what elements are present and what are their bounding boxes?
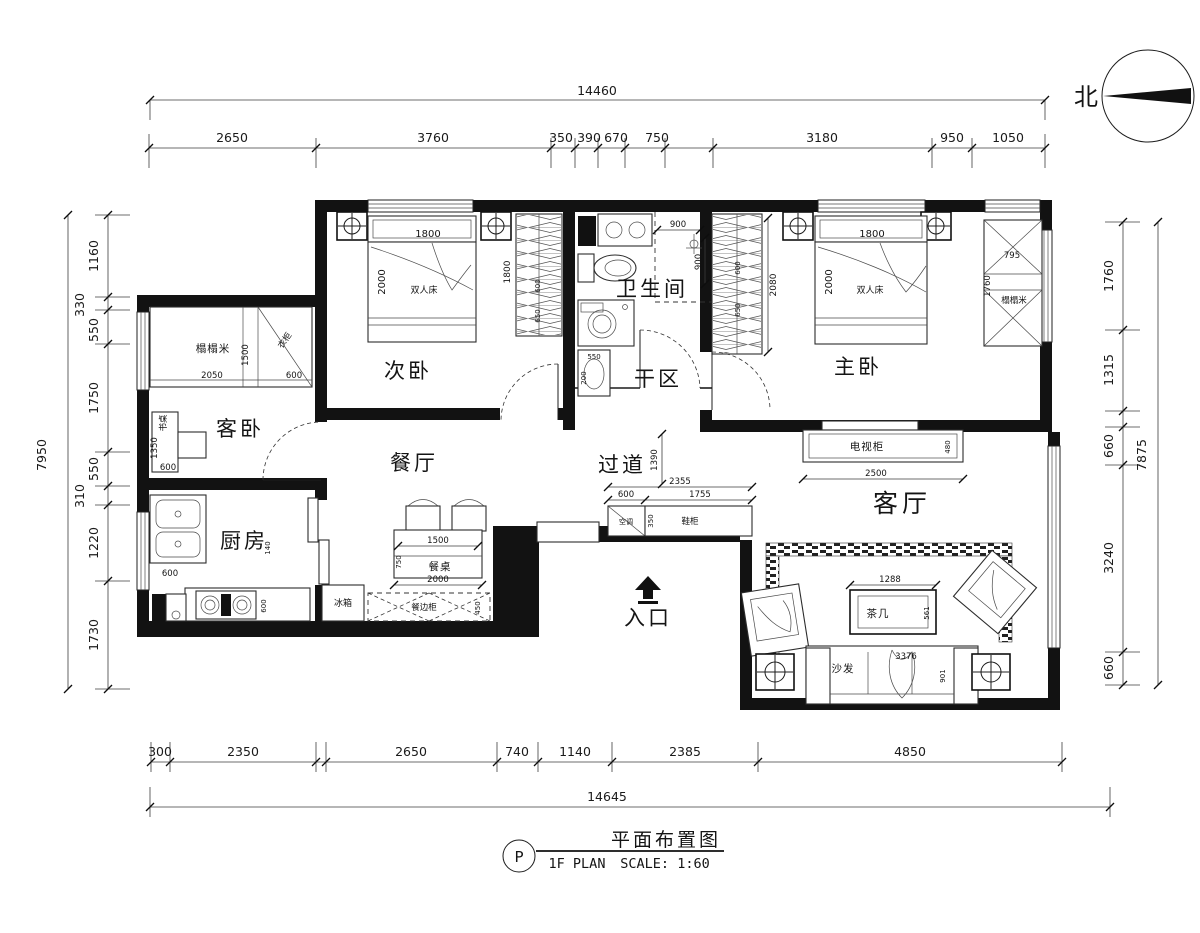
shoe-cabinet: 350 鞋柜 bbox=[645, 506, 752, 536]
dim-left-total: 7950 bbox=[34, 439, 49, 471]
tatami-dim: 2050 bbox=[201, 371, 223, 381]
room-label-kitchen: 厨房 bbox=[220, 529, 268, 553]
dry-area: 550 200 干区 bbox=[578, 350, 682, 396]
sofa-label: 沙发 bbox=[832, 662, 855, 675]
window-second-bedroom-top bbox=[368, 200, 473, 212]
kitchen: 厨房 140 600 600 bbox=[150, 495, 329, 621]
dim-top-total: 14460 bbox=[577, 83, 617, 98]
double-bed-label: 双人床 bbox=[410, 284, 437, 296]
desk-label: 书桌 bbox=[158, 414, 169, 432]
basin-dim: 550 bbox=[587, 353, 600, 361]
tea-table-dim: 561 bbox=[923, 606, 931, 619]
dim-right: 1315 bbox=[1101, 354, 1116, 386]
dim-left: 330 bbox=[72, 293, 87, 317]
tatami-dim: 1760 bbox=[983, 275, 993, 297]
tatami-nook: 795 1760 榻榻米 bbox=[983, 220, 1042, 346]
master-bedroom: 1800 2000 双人床 2080 600 650 795 1760 榻榻米 … bbox=[712, 214, 1042, 430]
tatami-dim: 1500 bbox=[241, 344, 251, 366]
room-label-second-bedroom: 次卧 bbox=[384, 359, 432, 383]
guest-bedroom: 榻榻米 2050 1500 600 衣柜 书桌 1350 600 客卧 bbox=[150, 307, 321, 480]
wardrobe: 2080 600 650 bbox=[712, 214, 779, 356]
sofa-dim: 3376 bbox=[895, 652, 917, 662]
dim-top: 350 bbox=[549, 130, 573, 145]
kitchen-dim: 600 bbox=[162, 569, 178, 579]
table-dim: 750 bbox=[395, 555, 403, 568]
dim-top: 950 bbox=[940, 130, 964, 145]
table-dim: 2000 bbox=[427, 575, 449, 585]
dim-left: 1220 bbox=[86, 527, 101, 559]
tea-table: 茶几 1288 561 bbox=[846, 575, 940, 634]
wardrobe-dim: 2080 bbox=[769, 273, 779, 296]
sideboard: 餐边柜 450 bbox=[368, 593, 490, 621]
window-kitchen-left bbox=[137, 512, 149, 590]
dim-left: 310 bbox=[72, 484, 87, 508]
double-bed-label: 双人床 bbox=[856, 284, 883, 296]
entry-door bbox=[537, 522, 599, 542]
dim-top: 3760 bbox=[417, 130, 449, 145]
dim-bottom: 740 bbox=[505, 744, 529, 759]
room-label-corridor: 过道 bbox=[598, 453, 646, 477]
dim-right: 1760 bbox=[1101, 260, 1116, 292]
compass-needle-icon bbox=[1103, 88, 1191, 104]
room-label-living: 客厅 bbox=[873, 489, 931, 518]
drawing-title: 平面布置图 bbox=[611, 829, 721, 851]
dining-table: 1500 750 餐桌 2000 bbox=[390, 530, 486, 589]
desk-dim: 600 bbox=[160, 463, 176, 473]
wardrobe-dim: 650 bbox=[734, 303, 742, 316]
room-label-bathroom: 卫生间 bbox=[616, 277, 688, 301]
column-icon bbox=[337, 212, 367, 240]
window-guest-left bbox=[137, 312, 149, 390]
table-label: 餐桌 bbox=[429, 560, 452, 573]
bed-depth-dim: 2000 bbox=[824, 269, 835, 294]
sofa-dim: 901 bbox=[939, 669, 947, 682]
wardrobe-dim: 650 bbox=[534, 309, 542, 322]
corner-fixture bbox=[166, 594, 186, 621]
room-label-guest-bedroom: 客卧 bbox=[216, 417, 264, 441]
dim-top: 1050 bbox=[992, 130, 1024, 145]
wardrobe-dim: 1800 bbox=[503, 260, 513, 283]
door-second-bedroom bbox=[501, 364, 558, 420]
title-ref-letter: P bbox=[514, 848, 523, 866]
sofa: 沙发 3376 901 bbox=[806, 646, 978, 704]
window-living-right bbox=[1048, 446, 1060, 648]
window-tatami-top bbox=[985, 200, 1040, 212]
bed-width-dim: 1800 bbox=[859, 229, 884, 240]
dim-right: 660 bbox=[1101, 656, 1116, 680]
corridor-dim: 600 bbox=[618, 490, 634, 500]
drawing-scale: SCALE: 1:60 bbox=[620, 856, 709, 872]
plan-code: 1F PLAN bbox=[549, 856, 606, 872]
room-label-dry-area: 干区 bbox=[634, 367, 682, 391]
armchair-left bbox=[741, 584, 808, 656]
column-icon bbox=[972, 654, 1010, 690]
dim-left: 1730 bbox=[86, 619, 101, 651]
dim-bottom: 2650 bbox=[395, 744, 427, 759]
kitchen-dim: 600 bbox=[260, 599, 268, 612]
tv-dim: 480 bbox=[944, 440, 952, 453]
wardrobe-dim: 600 bbox=[534, 279, 542, 292]
kitchen-sink bbox=[150, 495, 206, 563]
dim-left: 1160 bbox=[86, 240, 101, 272]
bed-depth-dim: 2000 bbox=[377, 269, 388, 294]
kitchen-dim: 140 bbox=[264, 541, 272, 554]
tv-wall-niche bbox=[822, 421, 918, 430]
wardrobe-dim: 600 bbox=[734, 261, 742, 274]
armchair-right bbox=[954, 550, 1037, 633]
column-icon bbox=[783, 212, 813, 240]
title-block: P 平面布置图 1F PLAN SCALE: 1:60 bbox=[503, 829, 724, 872]
tatami-label: 榻榻米 bbox=[196, 342, 231, 355]
door-master-bedroom bbox=[712, 352, 770, 410]
dim-left: 550 bbox=[86, 318, 101, 342]
fridge-label: 冰箱 bbox=[334, 597, 352, 609]
cabinet-label: 鞋柜 bbox=[681, 516, 699, 527]
north-arrow: 北 bbox=[1074, 50, 1194, 142]
tv-cabinet: 电视柜 480 2500 bbox=[799, 430, 967, 483]
desk-dim: 1350 bbox=[150, 437, 160, 459]
dining-chair bbox=[452, 500, 486, 532]
dim-left: 1750 bbox=[86, 382, 101, 414]
wardrobe: 1800 600 650 bbox=[503, 214, 562, 336]
living-room: 电视柜 480 2500 客厅 茶几 1288 561 bbox=[741, 430, 1036, 704]
shower-dim: 900 bbox=[694, 254, 704, 270]
dim-chain-right: 1760 1315 660 3240 660 7875 bbox=[1101, 218, 1162, 689]
dim-top: 2650 bbox=[216, 130, 248, 145]
dining-room: 餐厅 1500 750 餐桌 2000 餐边柜 450 冰 bbox=[322, 451, 490, 621]
fridge: 冰箱 bbox=[322, 585, 364, 621]
door-guest-bedroom bbox=[263, 422, 321, 480]
dim-bottom: 300 bbox=[148, 744, 172, 759]
tv-cabinet-label: 电视柜 bbox=[850, 440, 885, 453]
vanity bbox=[578, 214, 652, 246]
dim-chain-left: 7950 1160 330 550 1750 550 310 1220 1730 bbox=[34, 211, 130, 693]
sideboard-dim: 450 bbox=[474, 601, 482, 614]
tea-table-label: 茶几 bbox=[867, 607, 890, 620]
north-label: 北 bbox=[1074, 83, 1098, 111]
tatami-dim: 600 bbox=[286, 371, 302, 381]
dim-chain-bottom: 300 2350 2650 740 1140 2385 4850 14645 bbox=[146, 742, 1114, 817]
dining-chair bbox=[406, 500, 440, 532]
corridor-dim: 2355 bbox=[669, 477, 691, 487]
table-dim: 1500 bbox=[427, 536, 449, 546]
dim-top: 670 bbox=[604, 130, 628, 145]
dim-bottom-total: 14645 bbox=[587, 789, 627, 804]
dim-top: 3180 bbox=[806, 130, 838, 145]
column-icon bbox=[481, 212, 511, 240]
dim-right: 660 bbox=[1101, 434, 1116, 458]
basin-dim: 200 bbox=[580, 371, 588, 384]
room-label-dining: 餐厅 bbox=[390, 451, 438, 475]
wash-basin: 550 200 bbox=[578, 350, 610, 396]
dim-top: 750 bbox=[645, 130, 669, 145]
tatami-dim: 795 bbox=[1004, 251, 1020, 261]
entry-arrow-icon bbox=[635, 576, 661, 604]
dim-right-total: 7875 bbox=[1134, 439, 1149, 471]
dim-bottom: 1140 bbox=[559, 744, 591, 759]
tea-table-dim: 1288 bbox=[879, 575, 901, 585]
dim-bottom: 4850 bbox=[894, 744, 926, 759]
dim-bottom: 2350 bbox=[227, 744, 259, 759]
sideboard-label: 餐边柜 bbox=[411, 602, 437, 613]
corridor-dim: 1390 bbox=[650, 449, 660, 471]
sliding-door-kitchen bbox=[308, 498, 329, 584]
dim-top: 390 bbox=[577, 130, 601, 145]
corridor: 过道 1390 2355 600 1755 空调 350 鞋柜 bbox=[598, 430, 756, 536]
room-label-master-bedroom: 主卧 bbox=[834, 355, 882, 379]
tatami-label: 榻榻米 bbox=[1001, 295, 1027, 306]
tatami-bed: 榻榻米 2050 1500 600 衣柜 bbox=[150, 307, 312, 387]
floor-plan-page: 1800 2000 双人床 1800 600 650 次卧 榻榻米 2050 1… bbox=[0, 0, 1200, 933]
floor-plan-drawing: 1800 2000 双人床 1800 600 650 次卧 榻榻米 2050 1… bbox=[0, 0, 1200, 933]
cabinet-dim: 350 bbox=[647, 514, 655, 527]
dim-bottom: 2385 bbox=[669, 744, 701, 759]
tv-dim: 2500 bbox=[865, 469, 887, 479]
second-bedroom: 1800 2000 双人床 1800 600 650 次卧 bbox=[368, 214, 562, 420]
room-label-entrance: 入口 bbox=[624, 606, 672, 630]
washing-machine bbox=[578, 300, 634, 346]
corridor-dim: 1755 bbox=[689, 490, 711, 500]
dim-chain-top: 14460 2650 3760 350 390 670 750 3180 950… bbox=[145, 83, 1049, 168]
gas-stove bbox=[196, 591, 256, 619]
bed-width-dim: 1800 bbox=[415, 229, 440, 240]
dim-left: 550 bbox=[86, 457, 101, 481]
shower-dim: 900 bbox=[670, 220, 686, 230]
ac-cabinet: 空调 bbox=[608, 506, 645, 536]
ac-label: 空调 bbox=[619, 517, 633, 526]
window-master-bedroom-top bbox=[818, 200, 925, 212]
dim-right: 3240 bbox=[1101, 542, 1116, 574]
desk: 书桌 1350 600 bbox=[150, 412, 206, 473]
column-icon bbox=[756, 654, 794, 690]
